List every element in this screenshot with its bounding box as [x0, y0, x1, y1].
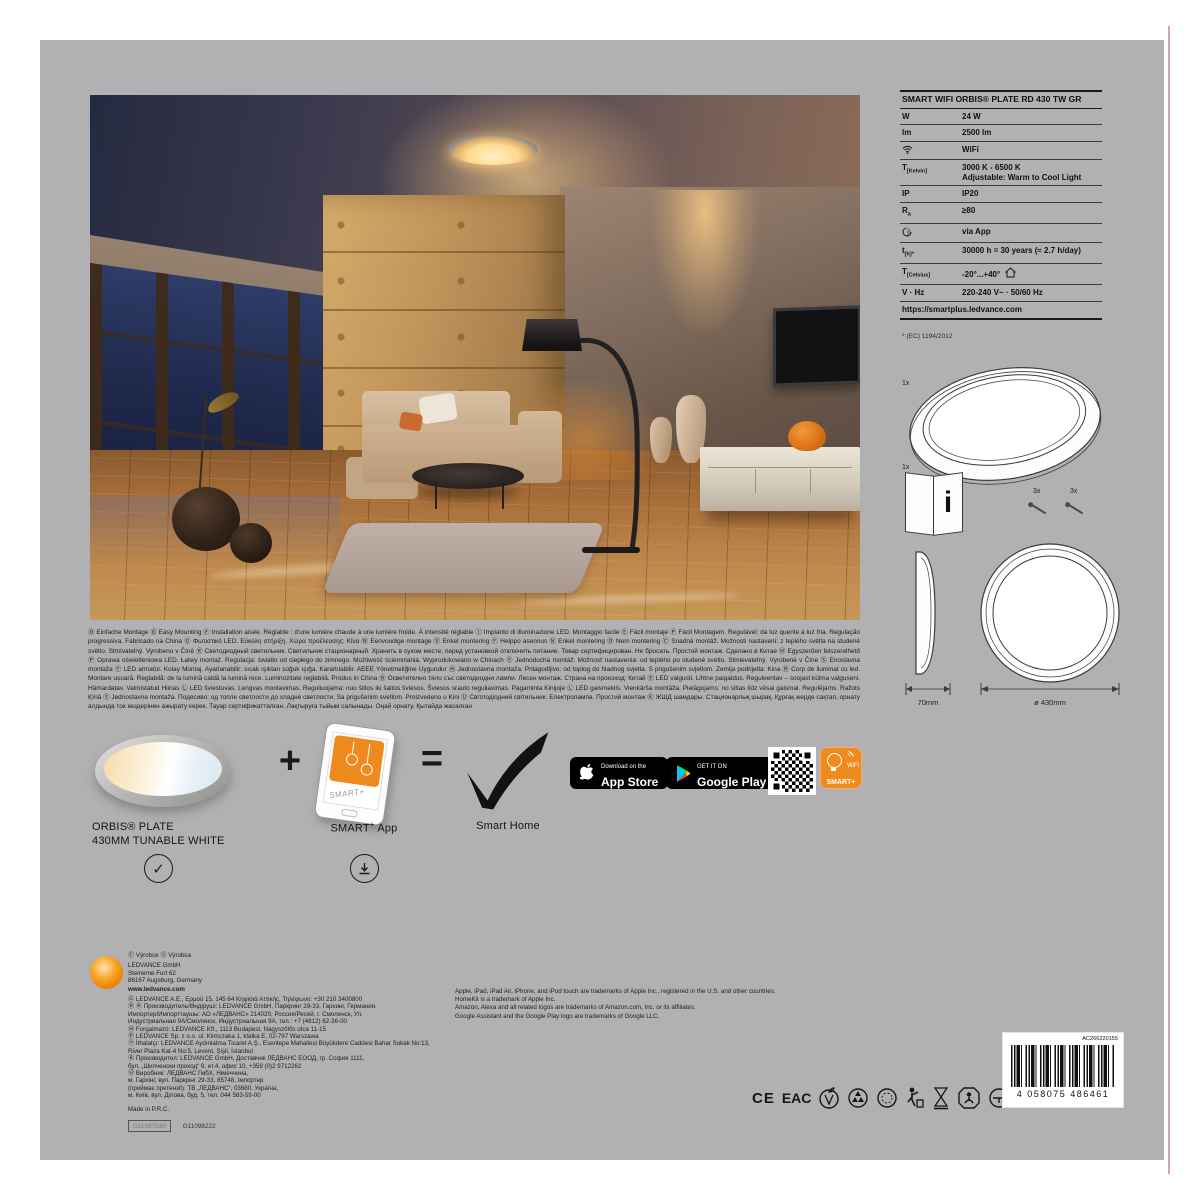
disposal-person-icon — [905, 1086, 925, 1110]
depth-dimension-line — [902, 682, 954, 696]
product-name-label: ORBIS® PLATE430MM TUNABLE WHITE — [92, 820, 225, 848]
production-codes: G11097930 G11098222 — [128, 1120, 216, 1132]
smartplus-url: https://smartplus.ledvance.com — [900, 302, 1102, 321]
photo-orbis-ceiling-lamp — [448, 135, 538, 165]
plus-sign: + — [270, 740, 310, 783]
gplay-name: Google Play — [697, 775, 766, 789]
qr-code — [768, 747, 816, 795]
wifi-icon — [902, 145, 962, 157]
gplay-tagline: GET IT ON — [697, 764, 727, 770]
orbis-product-image — [95, 735, 231, 807]
screw-icon — [1068, 504, 1084, 515]
ean-barcode — [1011, 1045, 1115, 1087]
depth-label: 70mm — [898, 698, 958, 707]
screws-quantity-1: 3x — [1033, 488, 1040, 495]
made-in-label: Made in P.R.C. — [128, 1106, 169, 1114]
spec-row-lifetime: t[h]* 30000 h = 30 years (≈ 2.7 h/day) — [900, 243, 1102, 264]
barcode-label: AC266220155 4 058075 486461 — [1003, 1033, 1123, 1107]
included-check-icon: ✓ — [144, 854, 173, 883]
photo-vase — [650, 417, 672, 463]
product-title: SMART WIFI ORBIS® PLATE RD 430 TW GR — [900, 90, 1102, 109]
barcode-batch-code: AC266220155 — [1082, 1036, 1118, 1042]
indoor-use-icon — [1004, 267, 1017, 281]
phone-app-name: SMART+ — [329, 787, 365, 800]
photo-tv-cabinet — [700, 447, 860, 511]
diameter-dimension-line — [970, 682, 1130, 696]
photo-orange-vase — [788, 421, 826, 451]
ledvance-orange-logo — [90, 956, 123, 989]
spec-row-temp: T[Celsius] -20°...+40° — [900, 264, 1102, 285]
certification-seal-icon — [876, 1087, 898, 1109]
eac-mark: EAC — [782, 1090, 812, 1106]
app-screen-orange — [329, 735, 385, 788]
screws-quantity-2: 3x — [1070, 488, 1077, 495]
approval-check-icon — [818, 1086, 840, 1110]
ean-number: 4 058075 486461 — [1003, 1089, 1123, 1099]
spec-row-dimming: via App — [900, 224, 1102, 244]
code-plain: G11098222 — [183, 1123, 216, 1130]
equals-sign: = — [412, 738, 452, 781]
screw-icon — [1031, 504, 1047, 515]
apple-logo-icon — [580, 764, 595, 782]
regulation-footnote: * (EC) 1194/2012 — [900, 332, 1102, 342]
qualified-installer-icon — [957, 1086, 981, 1110]
app-name-label: SMART+ App — [306, 820, 422, 835]
company-address: LEDVANCE GmbH Steinerne Furt 62 86167 Au… — [128, 962, 202, 985]
company-website: www.ledvance.com — [128, 986, 185, 994]
print-crop-mark — [1168, 26, 1170, 1174]
google-play-icon — [676, 765, 691, 782]
smart-home-label: Smart Home — [458, 820, 558, 832]
side-view-drawing — [905, 548, 951, 678]
distributor-addresses: Ⓖ LEDVANCE A.E., Ερμού 15, 145 64 Κηφισι… — [128, 996, 430, 1100]
diameter-label: ø 430mm — [1000, 698, 1100, 707]
phone-screen: SMART+ — [323, 731, 388, 810]
app-store-badge: Download on theApp Store — [570, 757, 668, 789]
phone-home-button — [341, 809, 358, 818]
smart-home-checkmark — [460, 728, 552, 812]
photo-lamp-shade — [522, 319, 582, 351]
room-photo — [90, 95, 860, 620]
smart-badge-name: SMART+ — [820, 779, 862, 786]
google-play-badge: GET IT ONGoogle Play — [666, 757, 776, 789]
instruction-manual-icon: i — [905, 468, 967, 538]
appstore-tagline: Download on the — [601, 764, 646, 770]
producer-labels: Ⓒ Výrobce Ⓢ Výrobca — [128, 952, 191, 960]
download-icon — [350, 854, 379, 883]
photo-decor-gourd — [230, 523, 272, 563]
appstore-name: App Store — [601, 775, 658, 789]
orbis-tunable-face — [104, 742, 222, 796]
packaging-back-panel: SMART WIFI ORBIS® PLATE RD 430 TW GR W 2… — [40, 40, 1164, 1160]
spec-row-ip: IP IP20 — [900, 186, 1102, 203]
ce-mark: CE — [752, 1090, 775, 1107]
smartphone-image: SMART+ — [314, 722, 397, 827]
code-boxed: G11097930 — [128, 1120, 171, 1132]
multilingual-description: Ⓓ Einfache Montage Ⓖ Easy Mounting Ⓕ Ins… — [88, 628, 860, 712]
front-view-drawing — [970, 542, 1130, 688]
spec-row-kelvin: T[Kelvin] 3000 K - 6500 KAdjustable: War… — [900, 160, 1102, 186]
photo-lamp-base — [582, 547, 640, 553]
spec-row-wifi: WiFi — [900, 142, 1102, 161]
trademark-notices: Apple, iPad, iPad Air, iPhone, and iPod … — [455, 988, 800, 1021]
bulb-icon — [827, 753, 842, 768]
hourglass-icon — [932, 1086, 950, 1110]
smart-plus-wifi-badge: WiFi SMART+ — [820, 747, 862, 789]
spec-row-cri: Ra ≥80 — [900, 203, 1102, 224]
spec-table: SMART WIFI ORBIS® PLATE RD 430 TW GR W 2… — [900, 90, 1102, 342]
smart-badge-wifi-label: WiFi — [847, 763, 859, 769]
spec-row-watt: W 24 W — [900, 109, 1102, 126]
spec-row-lumen: lm 2500 lm — [900, 125, 1102, 142]
recycle-icon — [847, 1087, 869, 1109]
spec-row-voltage: V · Hz 220-240 V~ · 50/60 Hz — [900, 285, 1102, 302]
dimming-icon — [902, 227, 962, 240]
